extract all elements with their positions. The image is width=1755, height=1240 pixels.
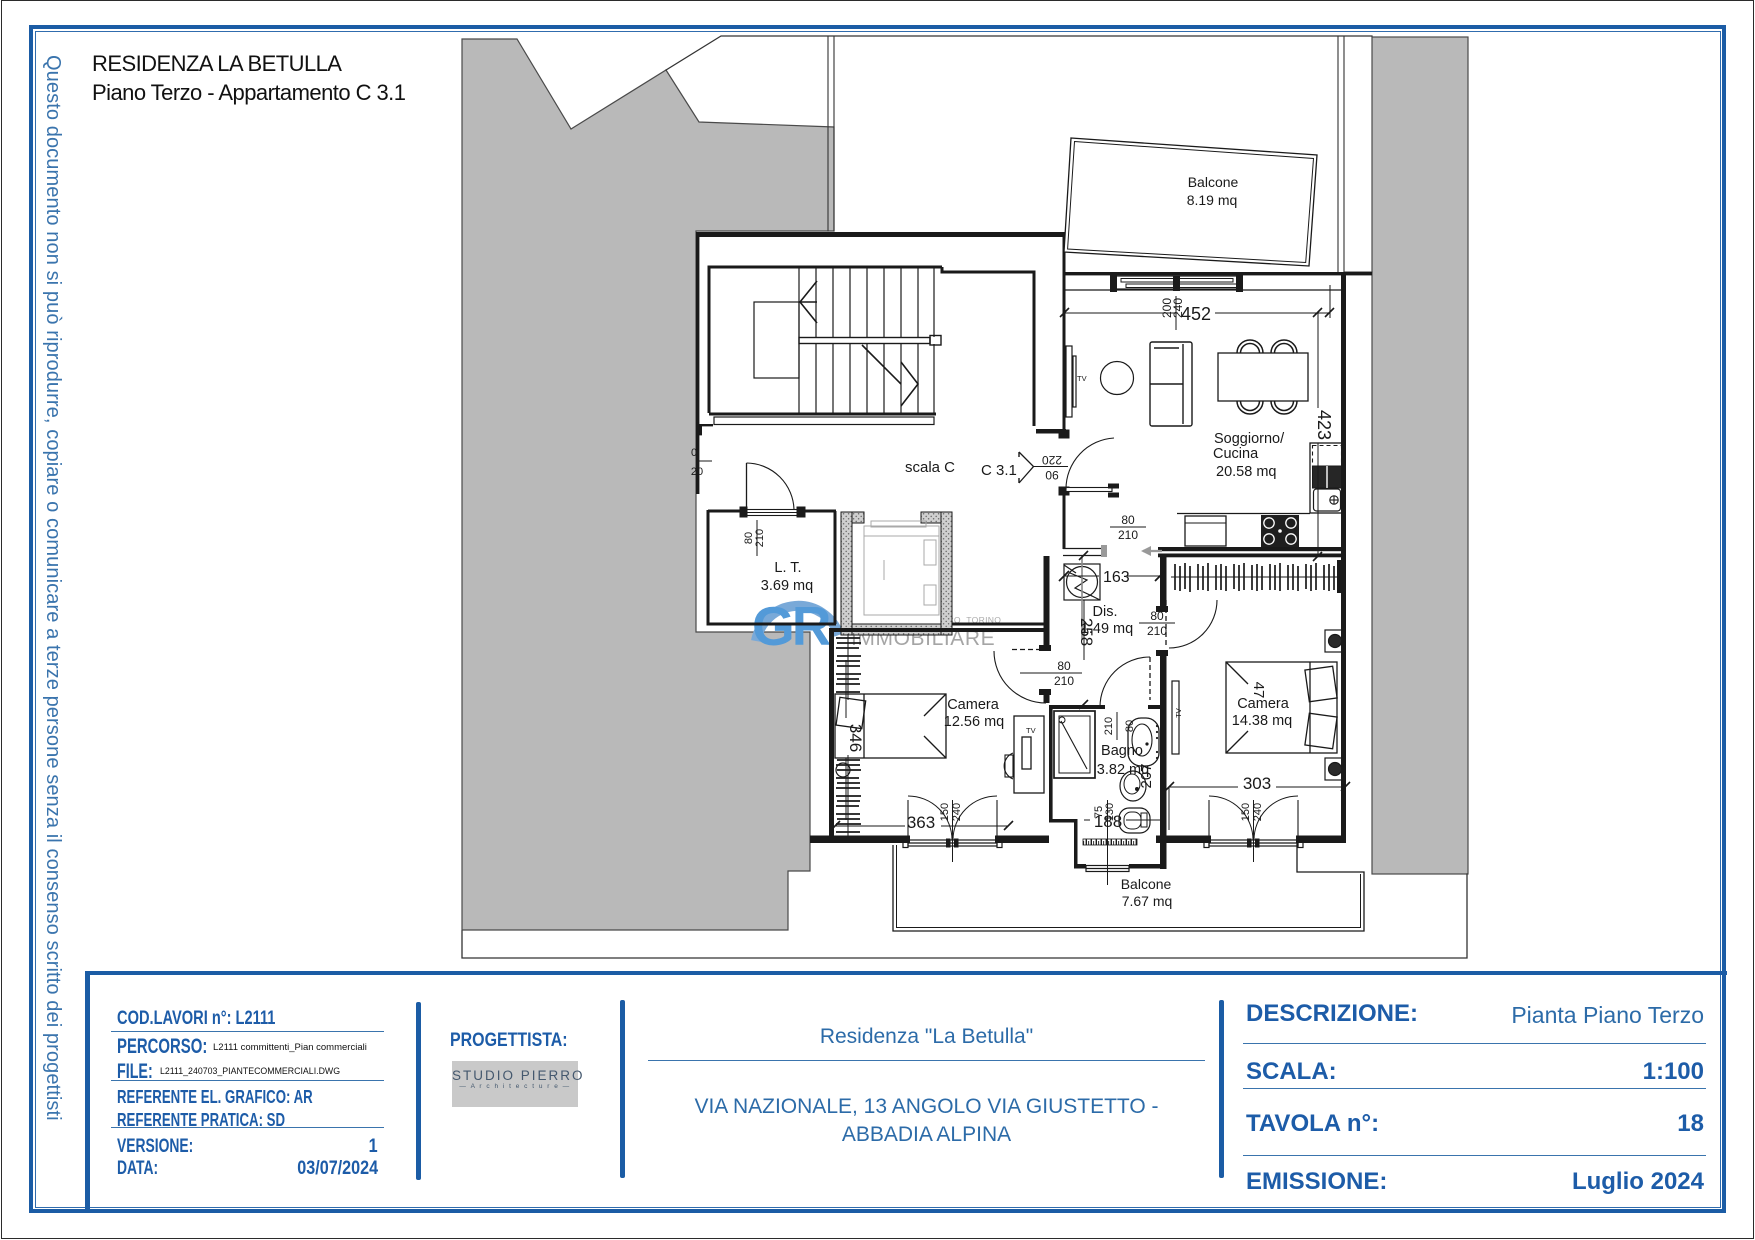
- svg-text:240: 240: [1171, 298, 1185, 318]
- svg-text:210: 210: [754, 529, 766, 547]
- svg-text:7.67 mq: 7.67 mq: [1122, 893, 1173, 909]
- svg-text:Balcone: Balcone: [1188, 174, 1239, 190]
- svg-text:TV: TV: [1174, 708, 1183, 718]
- svg-text:90: 90: [1045, 468, 1059, 482]
- svg-text:Cucina: Cucina: [1213, 446, 1259, 462]
- svg-text:240: 240: [951, 803, 963, 821]
- svg-text:80: 80: [1150, 609, 1164, 623]
- svg-text:210: 210: [1103, 717, 1115, 735]
- svg-text:240: 240: [1252, 803, 1264, 821]
- svg-text:20: 20: [691, 466, 703, 478]
- svg-text:Soggiorno/: Soggiorno/: [1214, 431, 1285, 447]
- svg-text:47: 47: [1250, 682, 1267, 699]
- svg-text:150: 150: [1240, 803, 1252, 821]
- svg-text:L. T.: L. T.: [774, 560, 801, 576]
- svg-text:363: 363: [907, 813, 935, 832]
- svg-text:346: 346: [846, 724, 865, 752]
- svg-text:Bagno: Bagno: [1101, 743, 1143, 759]
- svg-text:210: 210: [1118, 528, 1138, 542]
- svg-text:423: 423: [1314, 410, 1334, 440]
- svg-text:TV: TV: [1026, 726, 1036, 735]
- svg-text:220: 220: [1042, 453, 1062, 467]
- svg-text:452: 452: [1181, 304, 1211, 324]
- svg-text:163: 163: [1103, 569, 1130, 586]
- svg-text:150: 150: [939, 803, 951, 821]
- svg-text:Balcone: Balcone: [1121, 876, 1172, 892]
- svg-text:12.56 mq: 12.56 mq: [944, 714, 1004, 730]
- svg-text:210: 210: [1054, 674, 1074, 688]
- svg-text:14.38 mq: 14.38 mq: [1232, 713, 1292, 729]
- svg-text:303: 303: [1243, 774, 1271, 793]
- svg-text:80: 80: [1124, 720, 1136, 732]
- svg-text:Camera: Camera: [947, 697, 1000, 713]
- svg-text:210: 210: [1147, 624, 1167, 638]
- svg-text:8.19 mq: 8.19 mq: [1187, 192, 1238, 208]
- svg-text:GR: GR: [752, 595, 831, 657]
- svg-text:258: 258: [1077, 618, 1096, 646]
- svg-text:Camera: Camera: [1237, 696, 1290, 712]
- svg-text:80: 80: [1057, 659, 1071, 673]
- svg-text:C 3.1: C 3.1: [981, 462, 1017, 479]
- svg-text:207: 207: [1138, 763, 1155, 788]
- svg-text:3.69 mq: 3.69 mq: [761, 578, 813, 594]
- svg-text:0: 0: [691, 447, 697, 459]
- svg-text:130: 130: [1104, 803, 1116, 821]
- svg-text:20.58 mq: 20.58 mq: [1216, 464, 1276, 480]
- svg-text:80: 80: [1121, 513, 1135, 527]
- svg-text:scala C: scala C: [905, 459, 955, 476]
- svg-text:TV: TV: [1077, 374, 1087, 383]
